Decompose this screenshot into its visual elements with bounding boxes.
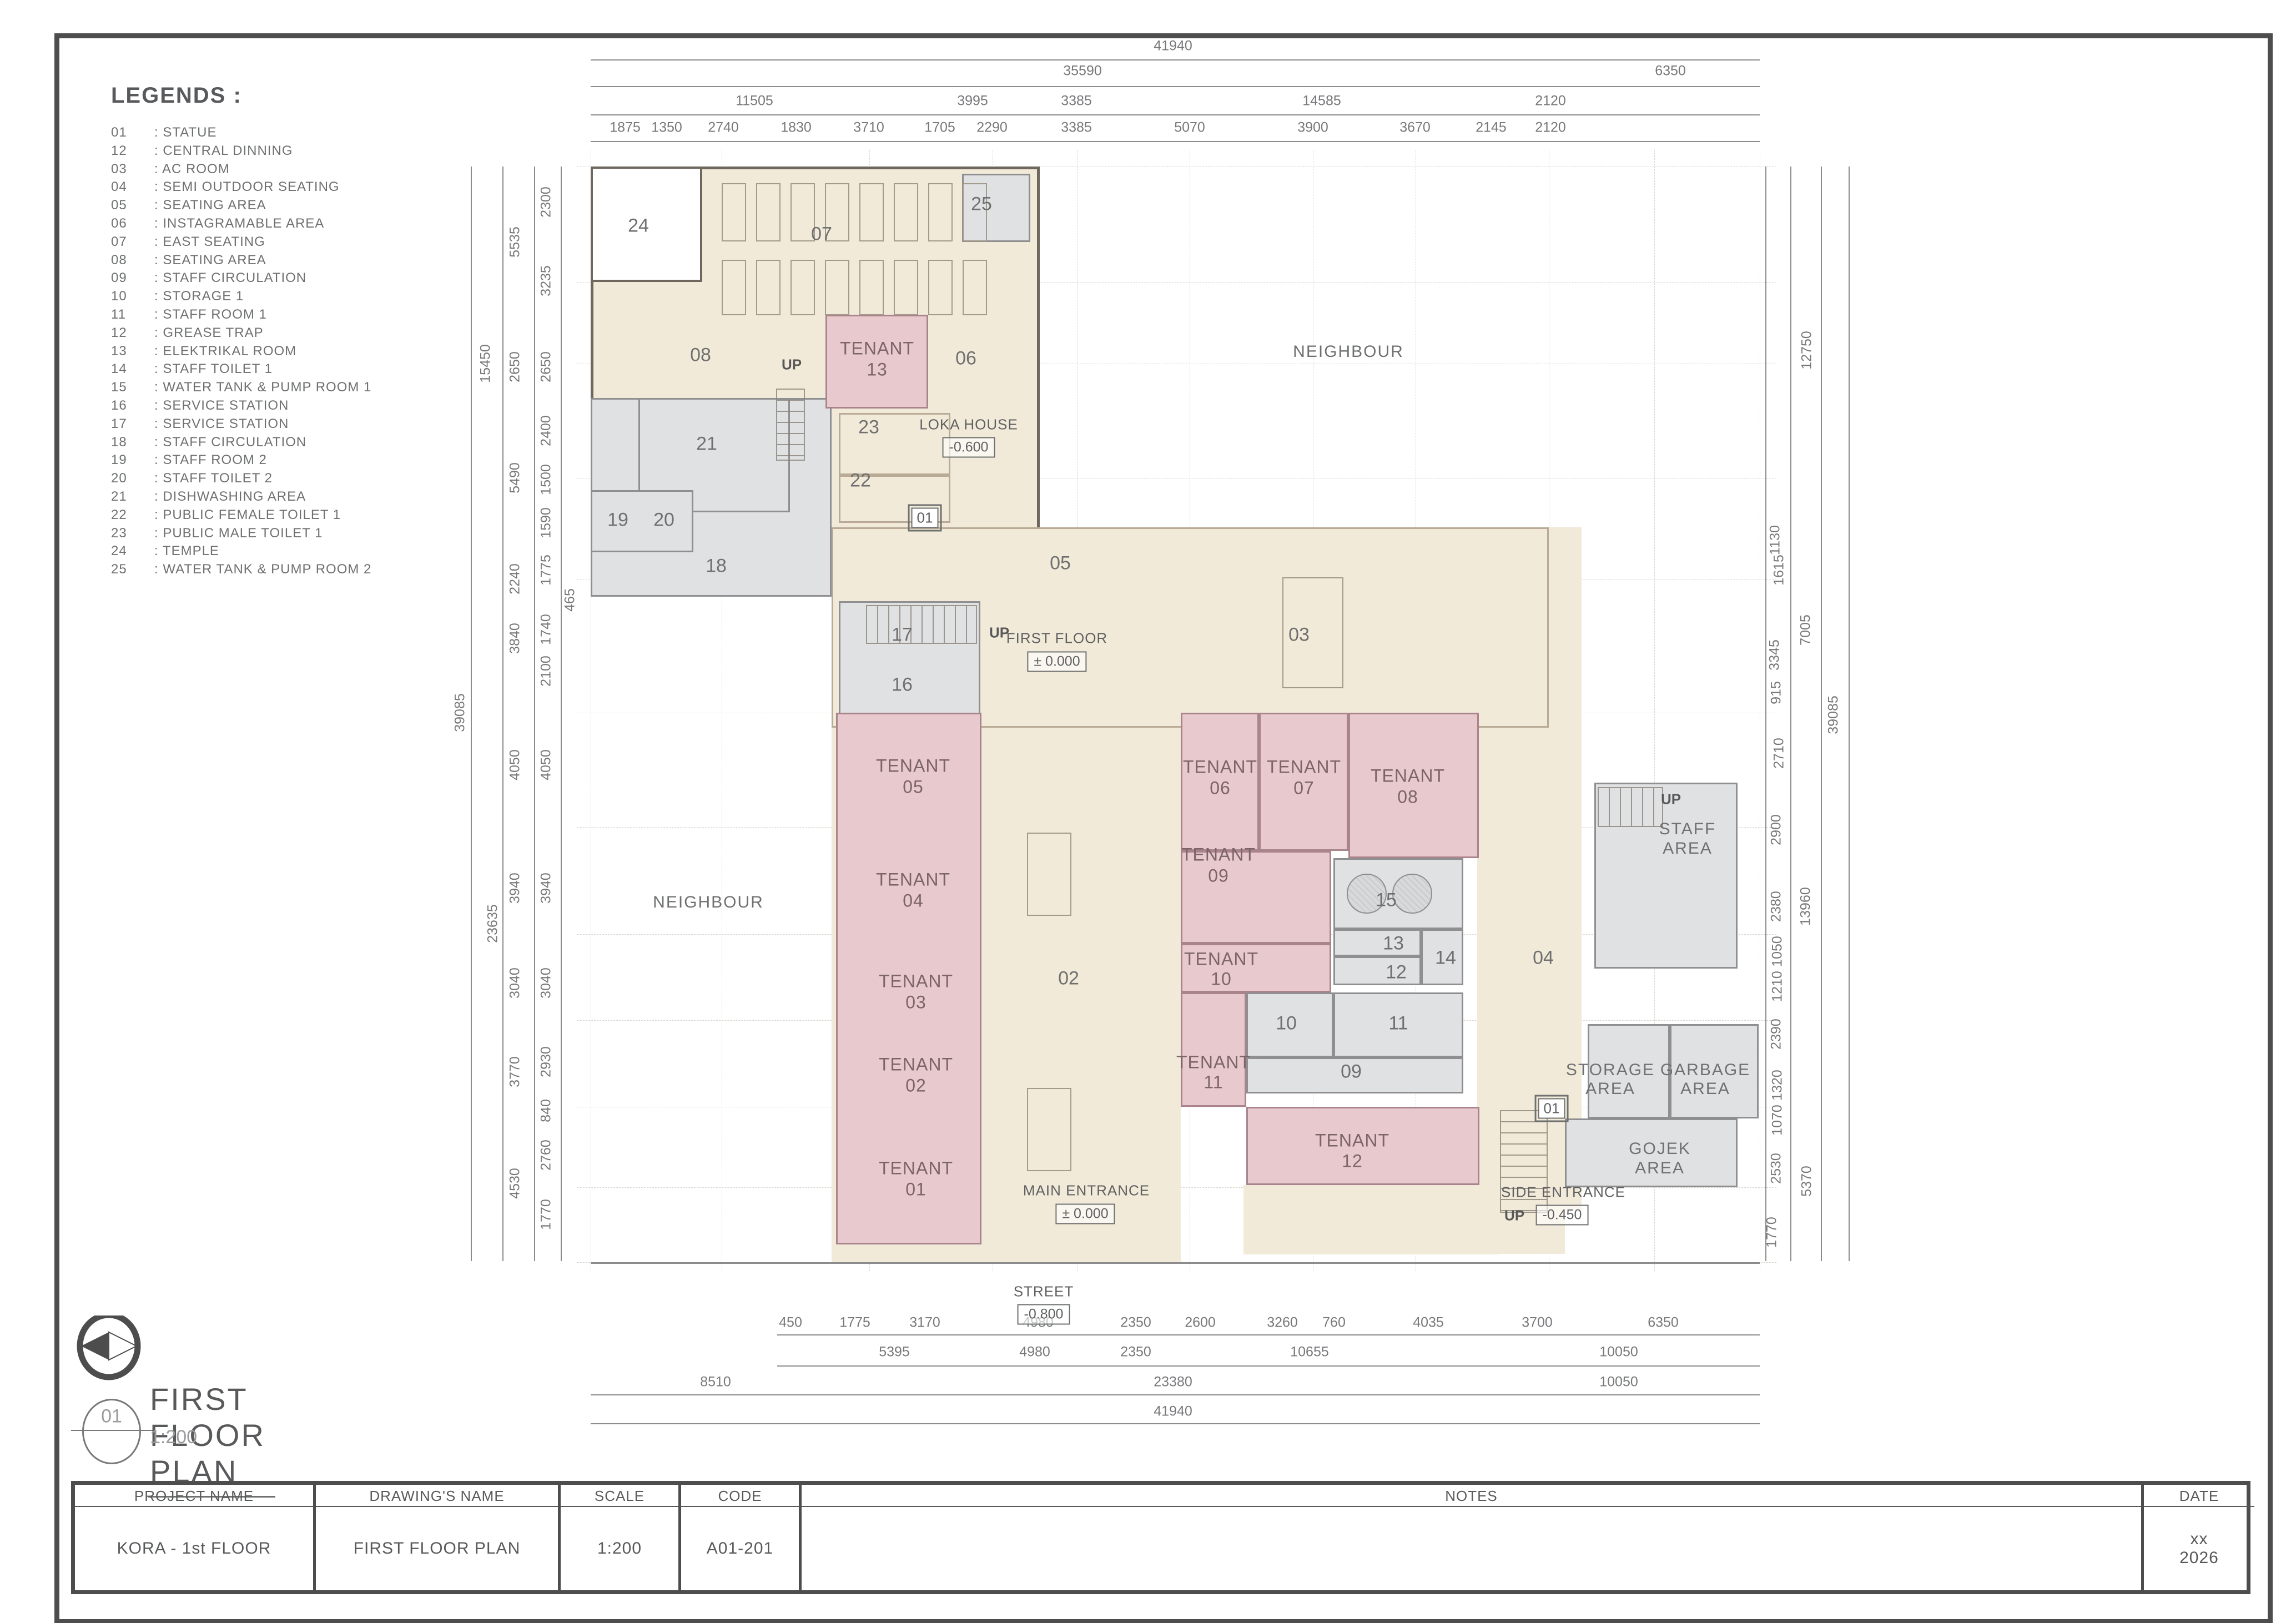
neighbour-top: NEIGHBOUR (1293, 342, 1404, 361)
plan-label: AREA (1635, 1159, 1685, 1178)
room-08-seating: 08 (690, 345, 711, 366)
detail-marker: 01 (82, 1399, 141, 1464)
elevation-main-entrance: ± 0.000 (1055, 1204, 1115, 1224)
tenant-label: 13 (867, 360, 888, 380)
titleblock-scale-cell: SCALE 1:200 (561, 1485, 681, 1590)
tenant-label: TENANT (879, 1055, 953, 1075)
room-14-stafftoilet1: 14 (1435, 947, 1456, 969)
room-19-staffroom2: 19 (607, 510, 628, 531)
room-17-service-station: 17 (892, 624, 913, 646)
tenant-label: TENANT (1183, 757, 1257, 778)
up-stair-label: UP (989, 624, 1009, 642)
room-24-temple: 24 (628, 215, 649, 237)
up-stair-label: UP (1661, 791, 1681, 808)
plan-scale: 1:200 (150, 1427, 197, 1448)
up-stair-label: UP (782, 356, 802, 374)
tenant-label: 03 (905, 992, 927, 1013)
tenant-label: 09 (1208, 866, 1229, 886)
elevation-street: -0.800 (1018, 1304, 1070, 1325)
elevation-first-floor: ± 0.000 (1027, 652, 1086, 672)
drawing-name-header: DRAWING'S NAME (316, 1485, 558, 1507)
tenant-label: 06 (1210, 778, 1231, 799)
plan-label: MAIN ENTRANCE (1023, 1182, 1150, 1199)
titleblock-date-cell: DATE xx2026 (2144, 1485, 2254, 1590)
room-20-stafftoilet2: 20 (653, 510, 674, 531)
plan-label: GARBAGE (1660, 1061, 1750, 1080)
room-03-ac-room: 03 (1288, 624, 1310, 646)
plan-label: LOKA HOUSE (919, 416, 1018, 434)
room-10-storage1: 10 (1276, 1013, 1297, 1035)
plan-label: STREET (1014, 1283, 1074, 1301)
tenant-label: TENANT (879, 1158, 953, 1179)
room-15-watertank1: 15 (1376, 890, 1397, 911)
plan-label: AREA (1680, 1080, 1730, 1098)
plan-label: STORAGE (1566, 1061, 1655, 1080)
tenant-label: TENANT (1176, 1052, 1251, 1073)
plan-label: AREA (1585, 1080, 1635, 1098)
statue-marker: 01 (912, 508, 939, 528)
tenant-label: TENANT (876, 870, 950, 890)
plan-label: SIDE ENTRANCE (1501, 1184, 1625, 1201)
tenant-label: TENANT (1315, 1131, 1389, 1151)
neighbour-left: NEIGHBOUR (653, 893, 764, 912)
room-09-staff-circulation: 09 (1341, 1061, 1362, 1083)
tenant-label: 05 (903, 777, 924, 798)
tenant-label: TENANT (1184, 949, 1258, 970)
project-name-value: KORA - 1st FLOOR (75, 1507, 313, 1590)
room-25-watertank2: 25 (971, 194, 992, 215)
tenant-label: TENANT (876, 756, 950, 777)
elevation-loka-house: -0.600 (943, 437, 995, 458)
title-block: PROJECT NAME KORA - 1st FLOOR DRAWING'S … (71, 1481, 2250, 1594)
titleblock-project-cell: PROJECT NAME KORA - 1st FLOOR (75, 1485, 316, 1590)
tenant-label: 11 (1204, 1072, 1223, 1093)
tenant-label: 10 (1211, 969, 1232, 990)
tenant-label: 08 (1397, 787, 1418, 808)
room-02-central-dinning: 02 (1058, 968, 1079, 990)
titleblock-drawing-cell: DRAWING'S NAME FIRST FLOOR PLAN (316, 1485, 561, 1590)
date-header: DATE (2144, 1485, 2254, 1507)
plan-label: GOJEK (1629, 1140, 1691, 1158)
room-12-grease-trap: 12 (1386, 962, 1407, 984)
detail-number: 01 (101, 1406, 122, 1428)
code-header: CODE (681, 1485, 799, 1507)
titleblock-code-cell: CODE A01-201 (681, 1485, 802, 1590)
room-23-male-toilet: 23 (858, 417, 879, 438)
room-11-staffroom1: 11 (1388, 1013, 1408, 1035)
tenant-label: 02 (905, 1076, 927, 1096)
detail-marker-line (71, 1430, 154, 1431)
room-05-seating: 05 (1050, 553, 1071, 574)
tenant-label: TENANT (879, 971, 953, 992)
north-arrow-icon (74, 1315, 152, 1382)
tenant-label: 01 (905, 1180, 927, 1200)
scale-value: 1:200 (561, 1507, 678, 1590)
project-name-header: PROJECT NAME (75, 1485, 313, 1507)
notes-value (802, 1507, 2141, 1590)
plan-label: AREA (1663, 839, 1713, 858)
drawing-sheet: LEGENDS : 01: STATUE12: CENTRAL DINNING0… (0, 0, 2296, 1623)
tenant-label: 04 (903, 891, 924, 911)
room-22-female-toilet: 22 (850, 470, 871, 492)
plan-label: FIRST FLOOR (1006, 630, 1107, 647)
code-value: A01-201 (681, 1507, 799, 1590)
tenant-label: TENANT (1267, 757, 1341, 778)
room-13-elektrikal: 13 (1383, 933, 1404, 955)
room-16-service-station: 16 (892, 674, 913, 696)
room-07-east-seating: 07 (811, 224, 832, 245)
elevation-side-entrance: -0.450 (1536, 1205, 1589, 1226)
tenant-label: TENANT (1181, 845, 1256, 865)
plan-labels: 2425070806212322192018051716030215131412… (0, 0, 2296, 1623)
scale-header: SCALE (561, 1485, 678, 1507)
tenant-label: TENANT (1371, 766, 1445, 787)
statue-marker: 01 (1538, 1098, 1565, 1119)
up-stair-label: UP (1504, 1207, 1524, 1224)
drawing-name-value: FIRST FLOOR PLAN (316, 1507, 558, 1590)
tenant-label: TENANT (840, 339, 914, 359)
room-04-semi-outdoor: 04 (1533, 947, 1554, 969)
date-value: xx2026 (2144, 1507, 2254, 1590)
room-21-dishwashing: 21 (696, 434, 717, 455)
notes-header: NOTES (802, 1485, 2141, 1507)
tenant-label: 12 (1342, 1151, 1363, 1172)
plan-label: STAFF (1659, 820, 1716, 839)
room-18-staff-circulation: 18 (706, 556, 727, 577)
titleblock-notes-cell: NOTES (802, 1485, 2144, 1590)
tenant-label: 07 (1293, 778, 1315, 799)
room-06-instagramable: 06 (955, 348, 976, 370)
